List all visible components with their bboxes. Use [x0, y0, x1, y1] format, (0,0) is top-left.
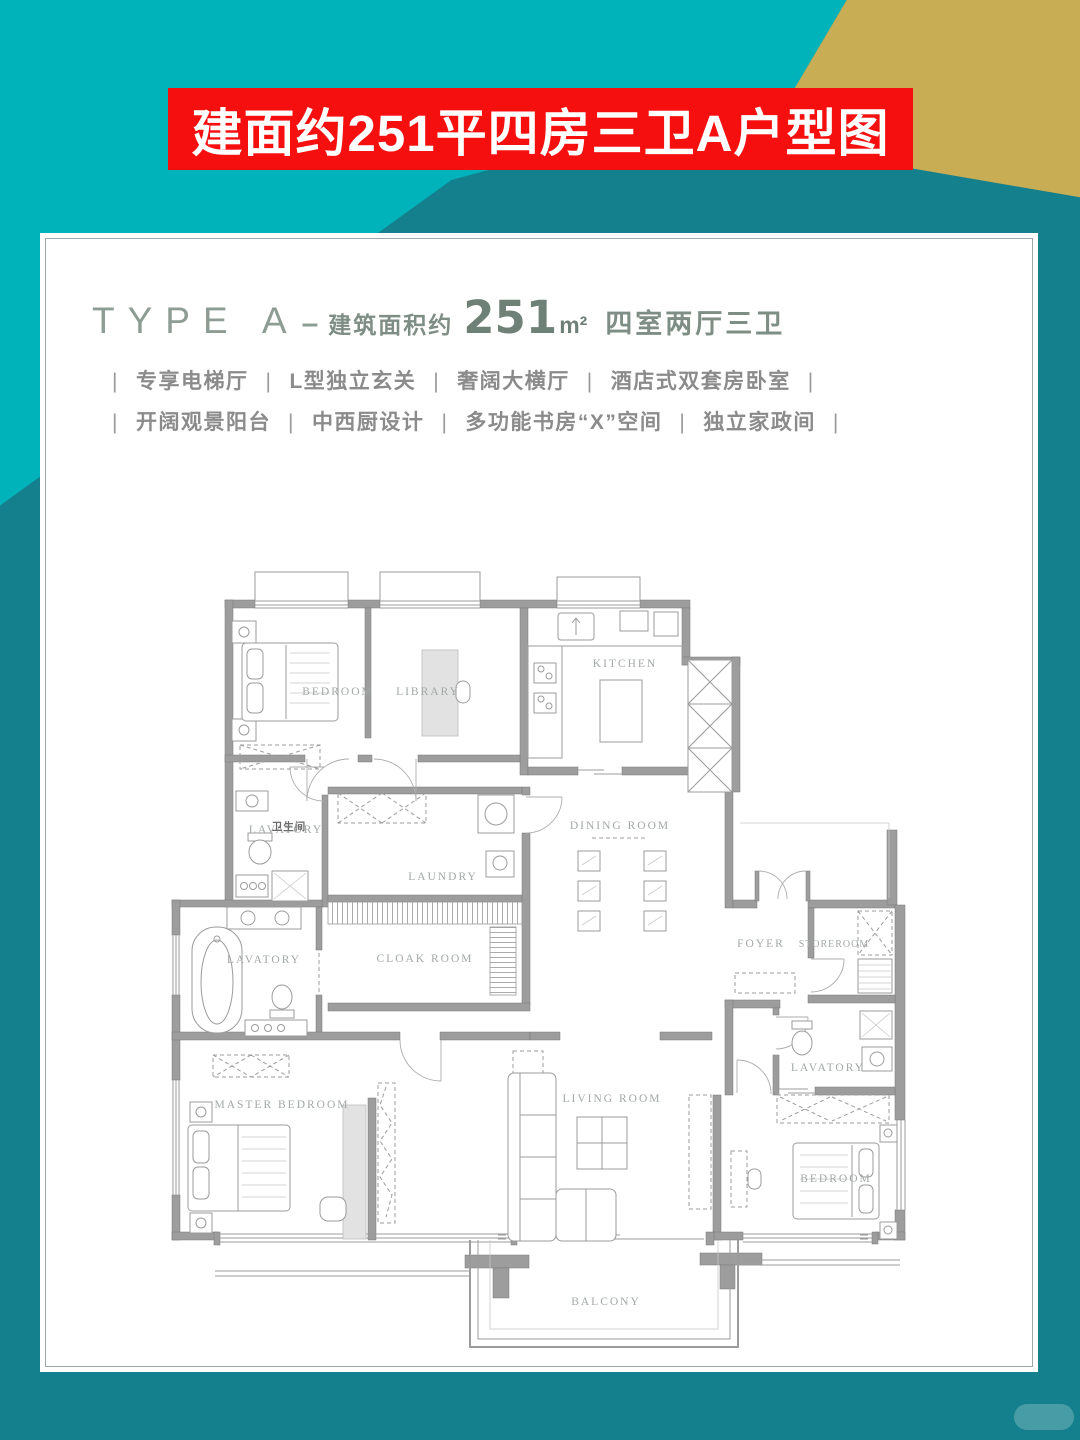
room-label-dining-room: DINING ROOM: [570, 820, 670, 832]
page: 建面约251平四房三卫A户型图 TYPE A – 建筑面积约 251 m² 四室…: [0, 0, 1080, 1440]
room-label-balcony: BALCONY: [571, 1296, 641, 1308]
room-label-bedroom-2: BEDROOM: [800, 1173, 872, 1185]
feature-separator: |: [808, 370, 815, 393]
floorplan-svg: BEDROOMLIBRARYKITCHENDINING ROOMLAVATORY…: [160, 555, 920, 1365]
feature-separator: |: [587, 370, 594, 393]
area-value: 251: [463, 291, 557, 344]
doors-layer: [290, 759, 844, 1094]
room-label-bedroom-1: BEDROOM: [302, 686, 374, 698]
feature-separator: |: [833, 411, 840, 434]
room-label-storeroom: STOREROOM: [799, 939, 870, 950]
floorplan: BEDROOMLIBRARYKITCHENDINING ROOMLAVATORY…: [160, 555, 920, 1365]
watermark-pill: [1014, 1404, 1074, 1430]
master-lavatory-furniture: [192, 907, 307, 1036]
title-banner: 建面约251平四房三卫A户型图: [168, 88, 913, 170]
cloak-room-closets: [328, 902, 522, 995]
dining-furniture: [578, 838, 666, 931]
room-label-lavatory-suite: LAVATORY: [791, 1062, 865, 1074]
feature-row-1: |专享电梯厅|L型独立玄关|奢阔大横厅|酒店式双套房卧室|: [95, 365, 832, 395]
type-label: TYPE A: [92, 300, 300, 342]
feature-item: 独立家政间: [703, 411, 816, 434]
feature-item: 奢阔大横厅: [457, 370, 570, 393]
feature-item: L型独立玄关: [289, 370, 416, 393]
area-unit: m²: [559, 312, 587, 339]
living-room-furniture: [508, 1051, 711, 1241]
room-label-living-room: LIVING ROOM: [563, 1093, 662, 1105]
room-label-library: LIBRARY: [396, 686, 460, 698]
feature-separator: |: [441, 411, 448, 434]
room-label-kitchen: KITCHEN: [593, 658, 657, 670]
feature-item: 多功能书房“X”空间: [465, 411, 662, 434]
feature-item: 开阔观景阳台: [136, 411, 271, 434]
room-label-foyer: FOYER: [737, 938, 785, 950]
shaft-boxes: [688, 660, 732, 792]
type-header: TYPE A – 建筑面积约 251 m² 四室两厅三卫: [92, 291, 785, 344]
feature-item: 专享电梯厅: [136, 370, 249, 393]
rooms-summary: 四室两厅三卫: [605, 302, 785, 341]
feature-separator: |: [265, 370, 272, 393]
feature-separator: |: [112, 370, 119, 393]
feature-separator: |: [433, 370, 440, 393]
kitchen-furniture: [528, 611, 682, 758]
feature-separator: |: [679, 411, 686, 434]
feature-row-2: |开阔观景阳台|中西厨设计|多功能书房“X”空间|独立家政间|: [95, 406, 857, 436]
furniture-layer: [188, 611, 897, 1241]
floorplan-card: TYPE A – 建筑面积约 251 m² 四室两厅三卫 |专享电梯厅|L型独立…: [40, 233, 1038, 1372]
room-label-laundry: LAUNDRY: [408, 871, 478, 883]
room-label-lavatory-master: LAVATORY: [227, 954, 301, 966]
master-bedroom-furniture: [188, 1055, 395, 1239]
laundry-furniture: [338, 793, 514, 877]
feature-separator: |: [112, 411, 119, 434]
type-dash: –: [302, 307, 319, 341]
feature-separator: |: [288, 411, 295, 434]
room-label-cloak-room: CLOAK ROOM: [377, 953, 474, 965]
room-label-master-bedroom: MASTER BEDROOM: [214, 1099, 349, 1111]
bedroom2-furniture: [731, 1095, 897, 1239]
feature-item: 酒店式双套房卧室: [611, 370, 791, 393]
room-label-lavatory-guest-zh: 卫生间: [272, 820, 307, 833]
guest-lavatory-furniture: [236, 791, 308, 901]
title-banner-text: 建面约251平四房三卫A户型图: [192, 92, 890, 166]
area-prefix: 建筑面积约: [328, 306, 453, 340]
feature-item: 中西厨设计: [312, 411, 425, 434]
